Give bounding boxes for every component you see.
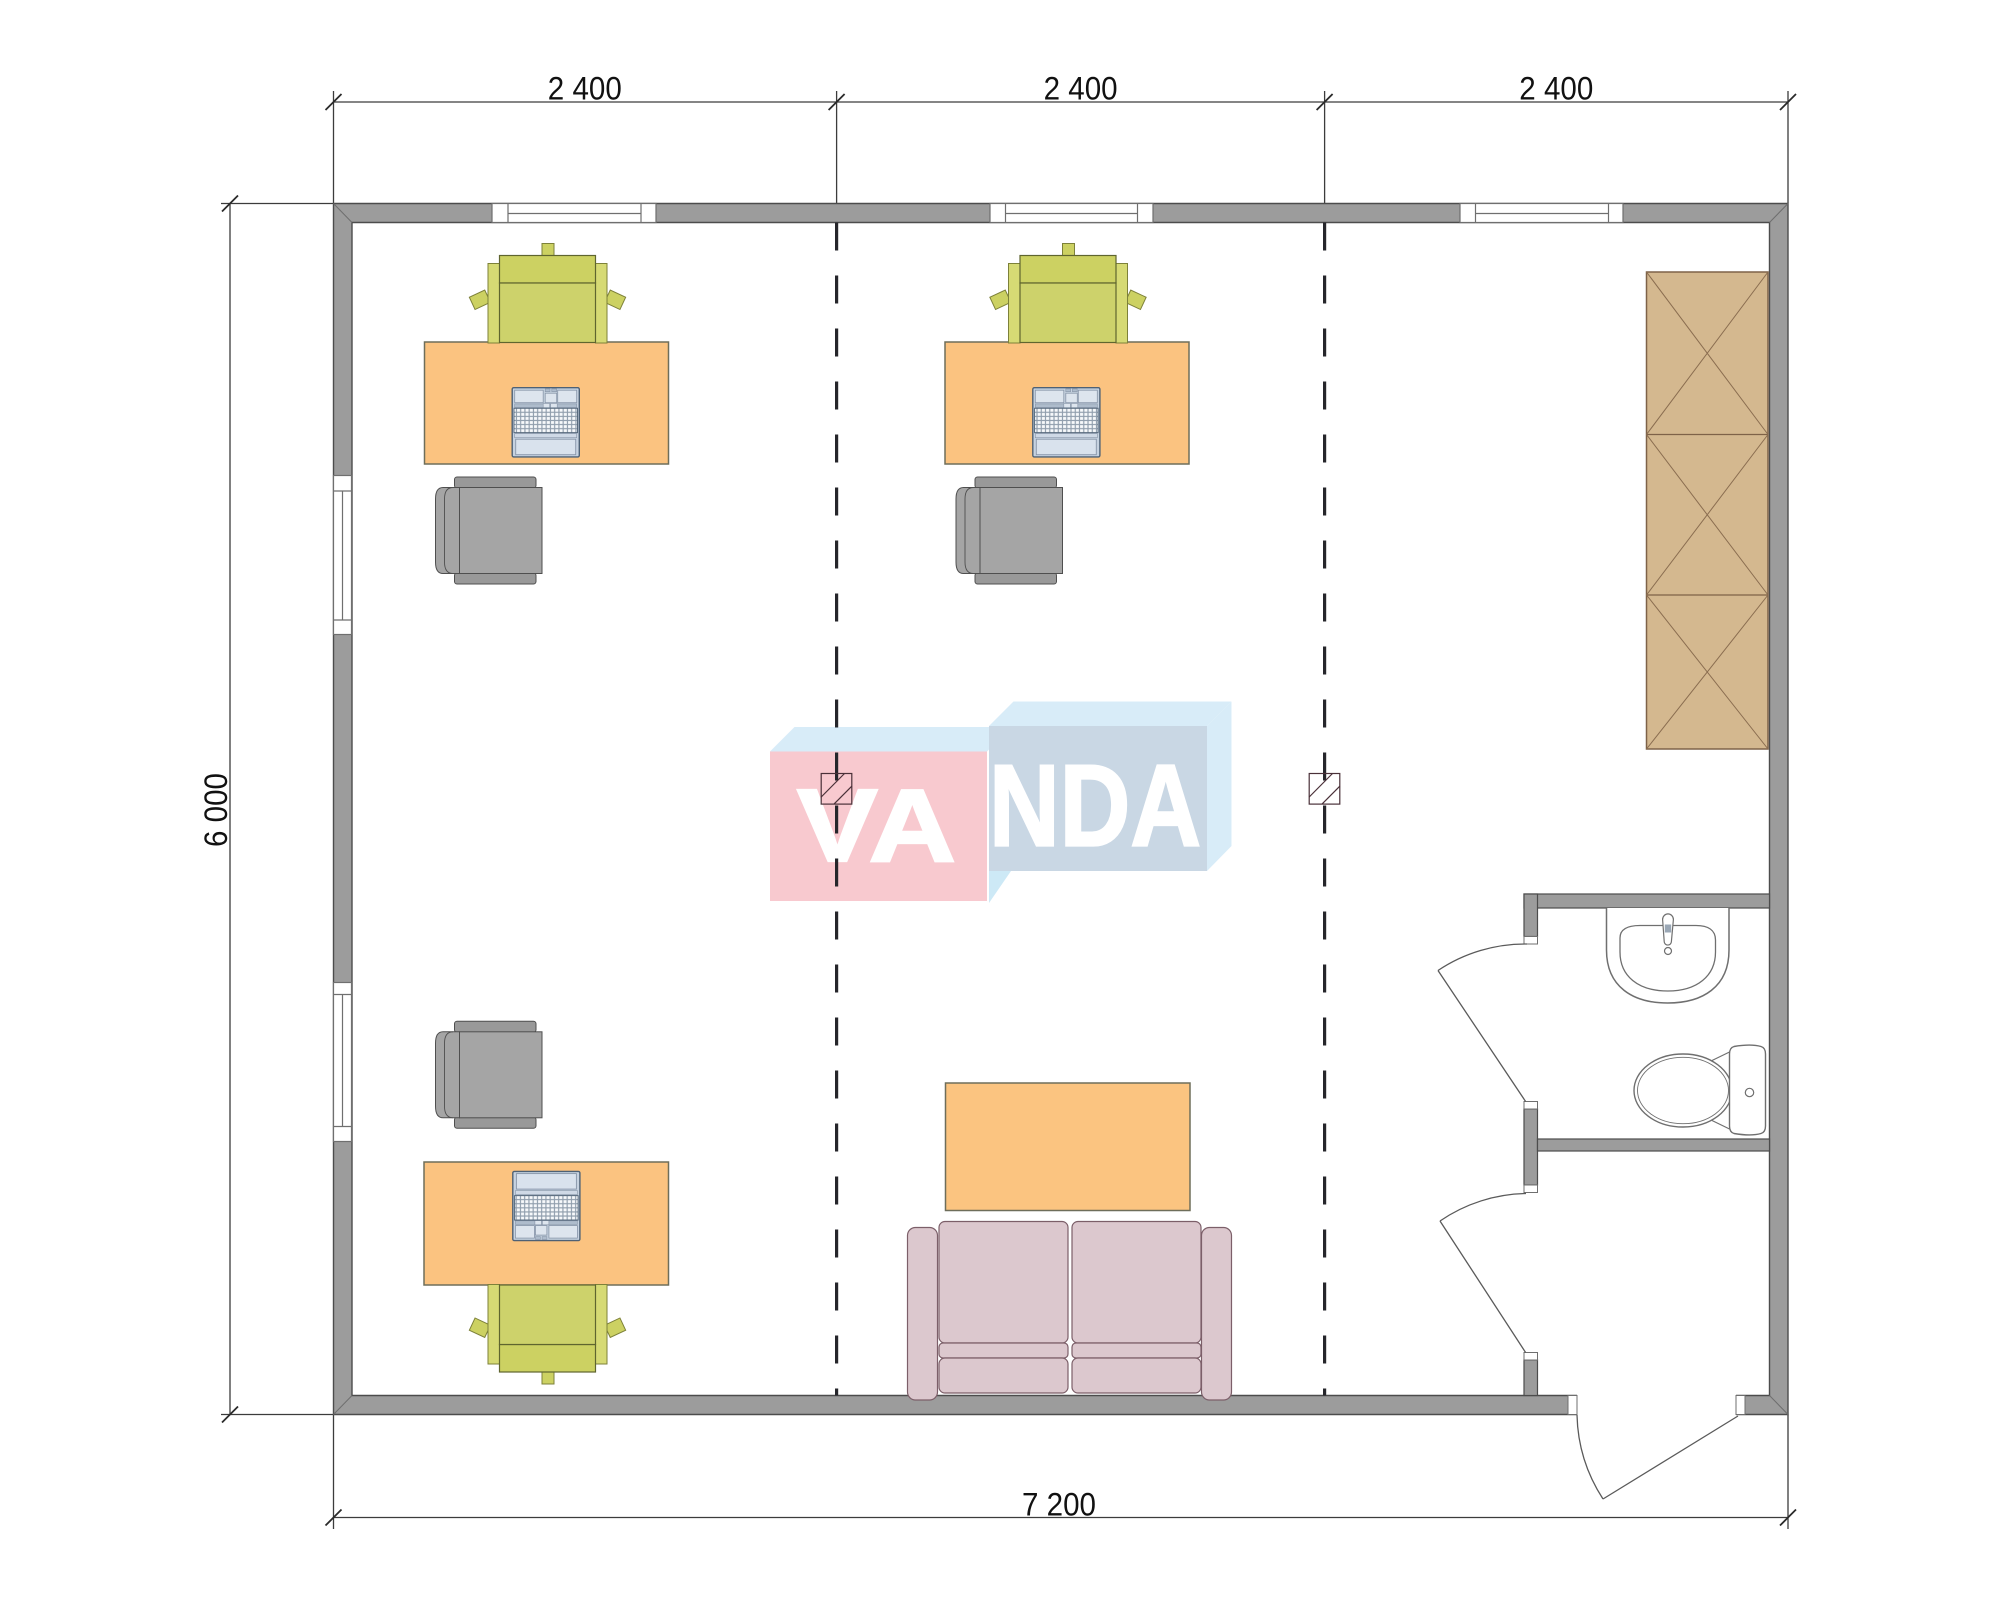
svg-text:6 000: 6 000 <box>198 773 234 847</box>
svg-text:7 200: 7 200 <box>1022 1487 1096 1523</box>
svg-text:2 400: 2 400 <box>1044 71 1118 107</box>
svg-text:2 400: 2 400 <box>1519 71 1593 107</box>
svg-text:2 400: 2 400 <box>548 71 622 107</box>
svg-text:NDA: NDA <box>989 741 1201 871</box>
